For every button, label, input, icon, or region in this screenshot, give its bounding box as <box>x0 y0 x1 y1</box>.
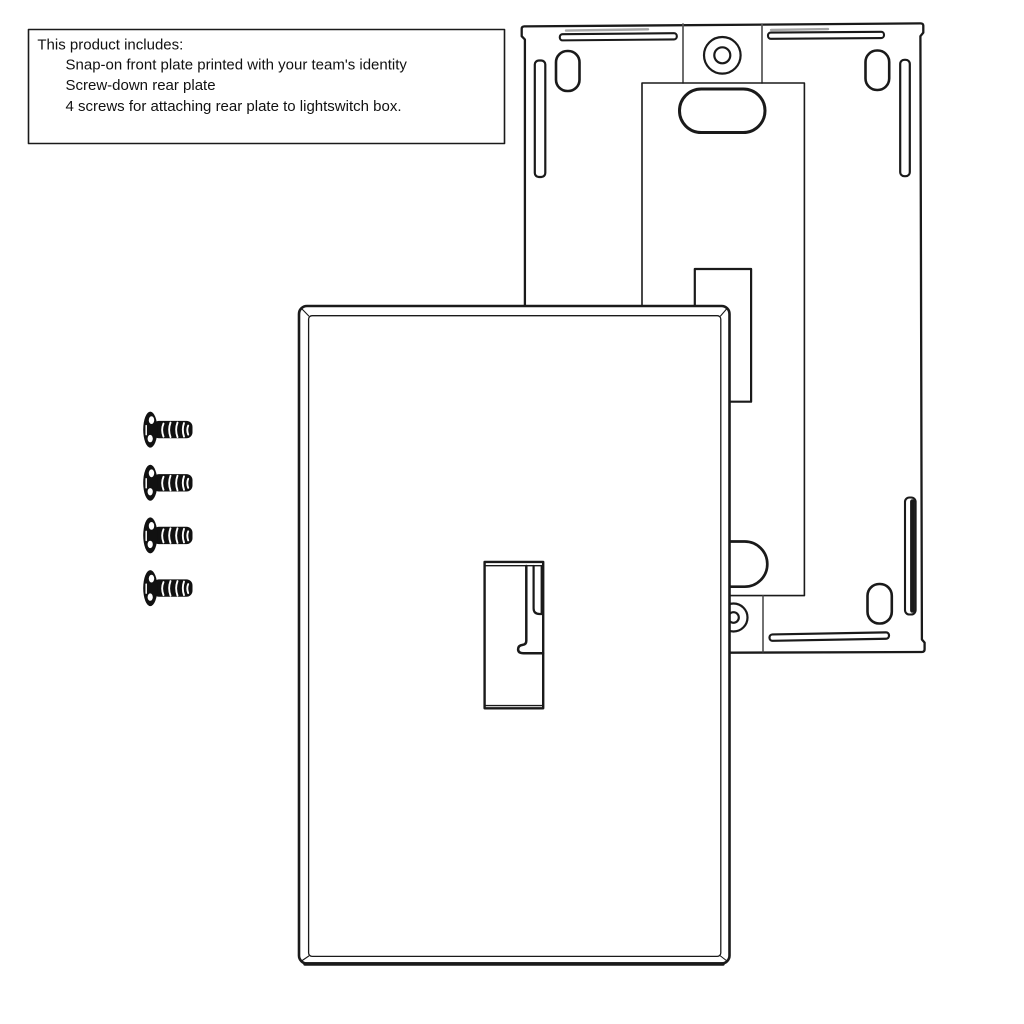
svg-text:This product includes:: This product includes: <box>37 36 183 53</box>
svg-text:Screw-down rear plate: Screw-down rear plate <box>66 77 216 94</box>
svg-text:4 screws for attaching rear pl: 4 screws for attaching rear plate to lig… <box>66 98 402 115</box>
svg-text:Snap-on front plate printed wi: Snap-on front plate printed with your te… <box>66 57 408 74</box>
